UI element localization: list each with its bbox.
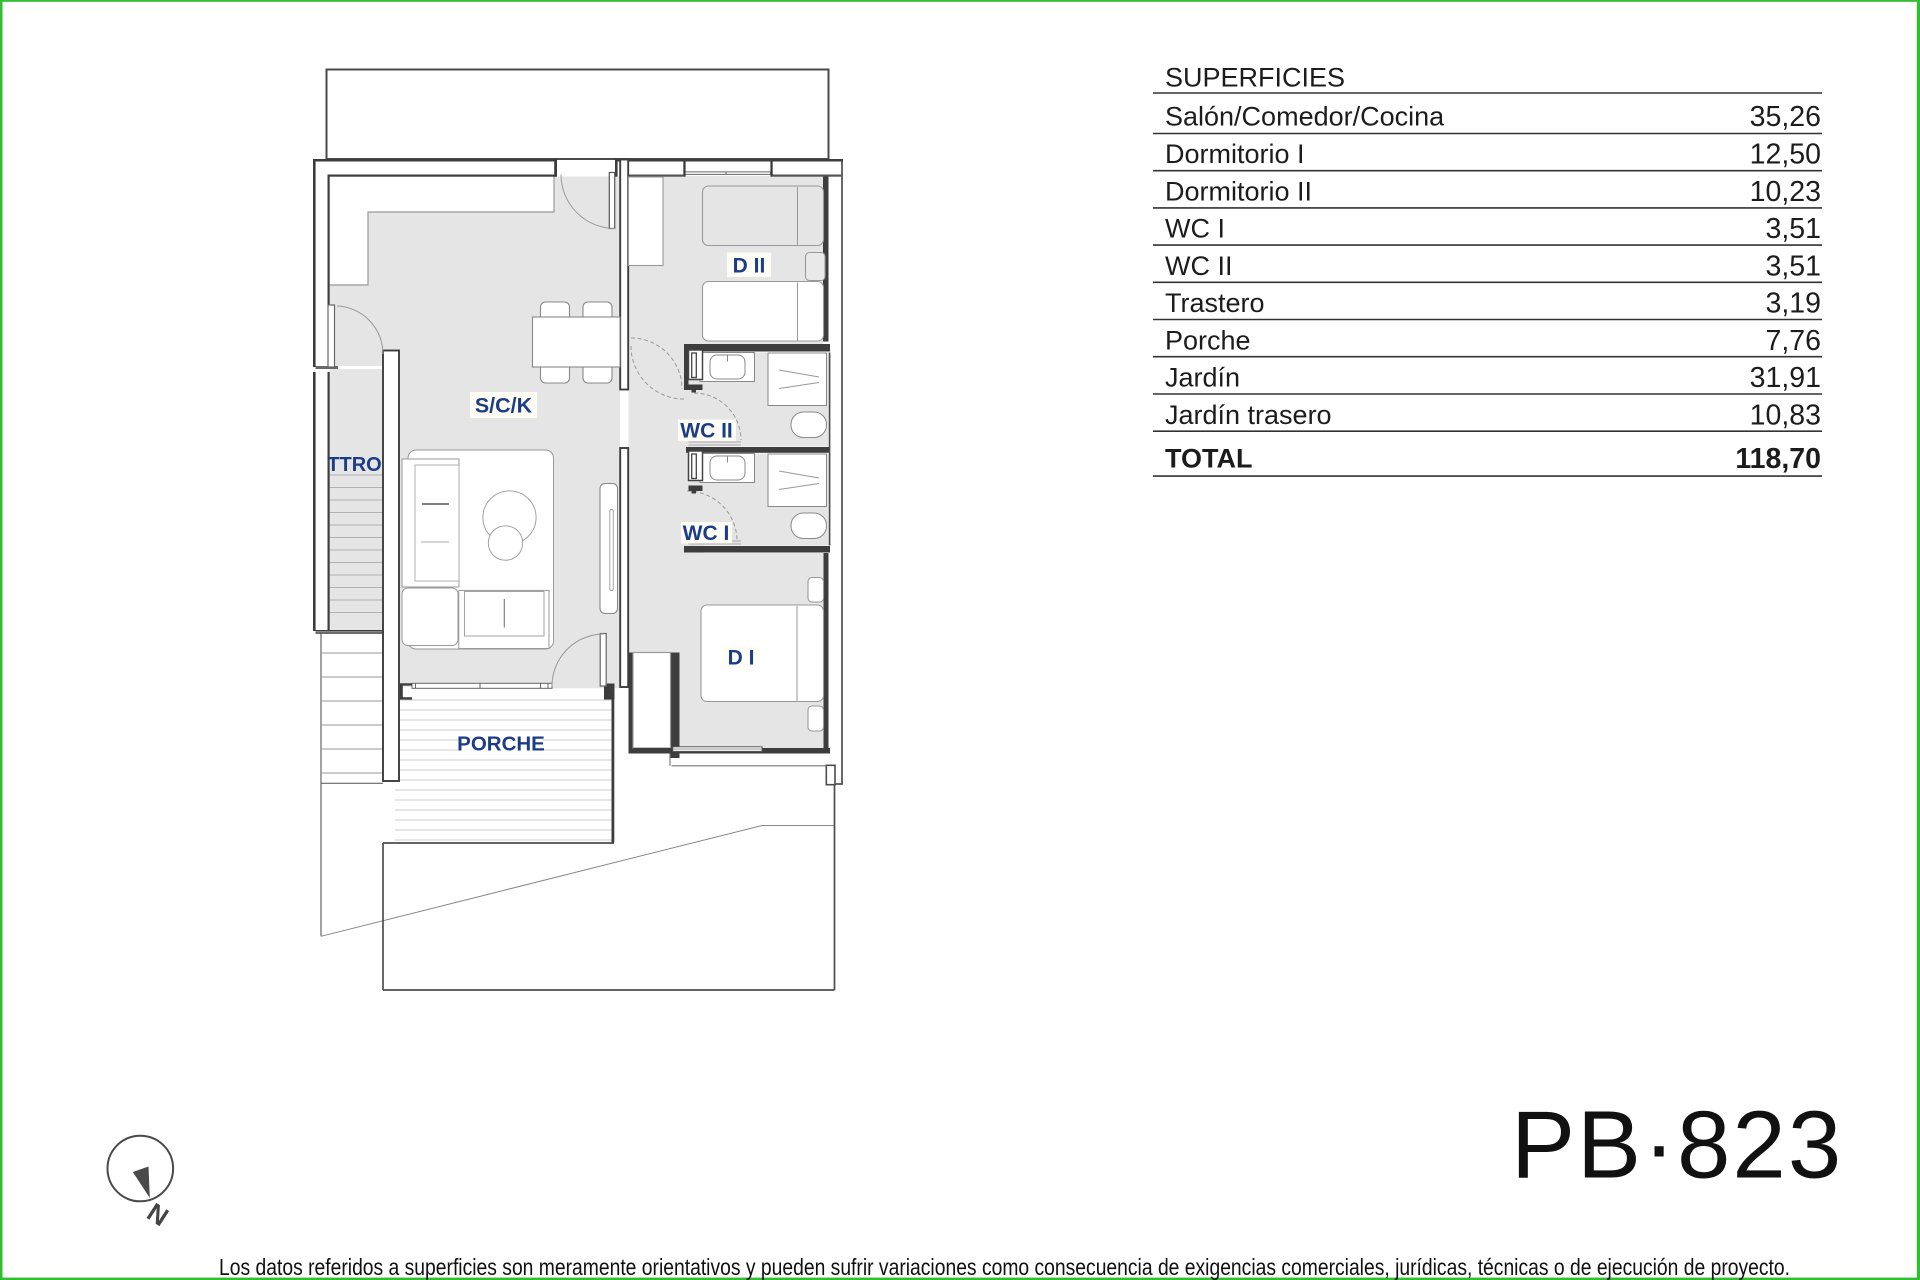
svg-text:WC I: WC I [683,522,730,545]
svg-text:TOTAL: TOTAL [1165,444,1253,474]
svg-text:3,51: 3,51 [1766,251,1821,283]
svg-text:WC I: WC I [1165,214,1225,244]
svg-text:31,91: 31,91 [1750,362,1821,394]
svg-text:Porche: Porche [1165,326,1251,356]
svg-text:10,83: 10,83 [1750,400,1821,432]
svg-text:35,26: 35,26 [1750,101,1821,133]
svg-text:PB·823: PB·823 [1511,1092,1843,1199]
svg-text:118,70: 118,70 [1735,443,1821,475]
svg-text:WC II: WC II [680,420,733,443]
svg-text:Jardín trasero: Jardín trasero [1165,400,1332,430]
svg-text:3,51: 3,51 [1766,213,1821,245]
svg-text:10,23: 10,23 [1750,176,1821,208]
svg-text:Dormitorio I: Dormitorio I [1165,139,1305,169]
svg-text:Los datos referidos a superfic: Los datos referidos a superficies son me… [219,1254,1790,1280]
svg-text:WC II: WC II [1165,251,1233,281]
svg-text:SUPERFICIES: SUPERFICIES [1165,63,1345,93]
svg-text:Trastero: Trastero [1165,288,1265,318]
svg-text:S/C/K: S/C/K [475,394,533,418]
svg-text:PORCHE: PORCHE [457,733,545,756]
svg-text:Salón/Comedor/Cocina: Salón/Comedor/Cocina [1165,102,1445,132]
svg-text:3,19: 3,19 [1766,288,1821,320]
svg-text:12,50: 12,50 [1750,139,1821,171]
svg-text:TTRO: TTRO [327,454,381,476]
svg-text:D II: D II [733,255,766,278]
svg-text:D I: D I [728,647,755,670]
svg-text:Jardín: Jardín [1165,363,1240,393]
svg-text:7,76: 7,76 [1766,325,1821,357]
svg-text:Dormitorio II: Dormitorio II [1165,177,1312,207]
